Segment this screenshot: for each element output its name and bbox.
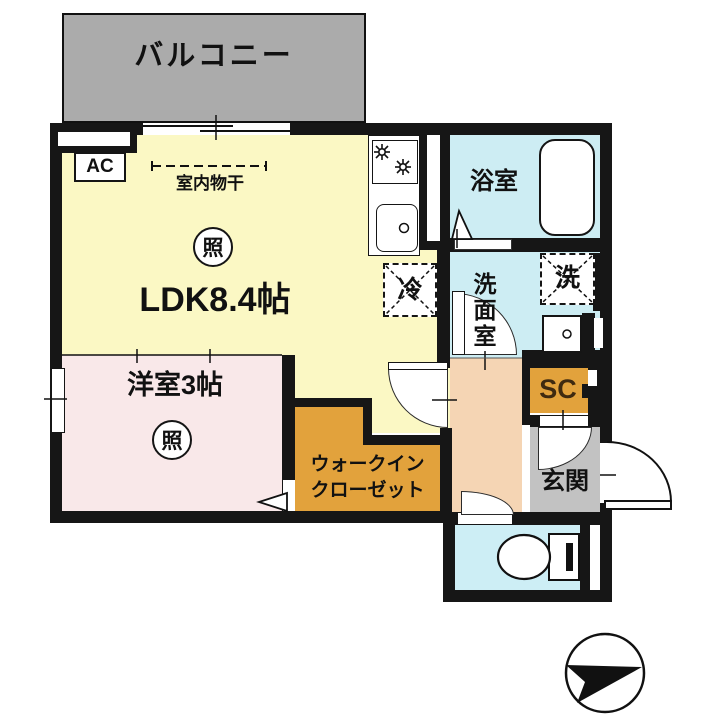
wall-kitchen-divider-a — [420, 135, 427, 243]
ldk-light-label: 照 — [203, 232, 224, 262]
western-window — [51, 368, 65, 433]
wall-wic-top — [295, 398, 370, 407]
ldk-door-leaf — [388, 362, 448, 370]
toilet-duct-nook — [590, 525, 600, 590]
wall-toilet-inner-right — [580, 525, 590, 590]
washbasin — [542, 315, 582, 353]
basin-wall-nook — [594, 318, 603, 348]
wall-kitchen-divider-c — [420, 241, 450, 250]
wall-bottom — [50, 511, 452, 523]
bathroom-label: 浴室 — [452, 168, 536, 196]
balcony-window-opening — [143, 123, 290, 135]
corner-window-inset — [58, 132, 130, 146]
balcony-label: バルコニー — [62, 40, 366, 73]
sc-door-opening — [540, 416, 588, 426]
washroom-door-leaf — [452, 291, 465, 355]
ldk-label: LDK8.4帖 — [100, 281, 330, 320]
washroom-label: 洗面室 — [466, 256, 496, 366]
wall-left — [50, 123, 62, 523]
bath-door-opening — [454, 239, 512, 250]
fridge-label: 冷 — [383, 276, 437, 305]
stove — [372, 140, 418, 184]
kitchen-sink — [376, 204, 418, 252]
indoor-drying-label: 室内物干 — [150, 174, 270, 194]
wic-label-line1: ウォークイン — [293, 452, 442, 478]
wall-kitchen-divider-b — [440, 135, 450, 243]
wall-washroom-left — [437, 250, 450, 368]
ac-box: AC — [74, 152, 126, 182]
ldk-light-badge: 照 — [193, 227, 233, 267]
sc-wall-notch — [588, 370, 597, 386]
shoe-closet-label: SC — [528, 374, 588, 405]
western-light-label: 照 — [162, 425, 183, 455]
bathtub — [539, 139, 595, 236]
entrance-label: 玄関 — [526, 468, 604, 496]
western-light-badge: 照 — [152, 420, 192, 460]
front-door-arc-icon — [607, 442, 671, 502]
western-room-label: 洋室3帖 — [80, 370, 270, 401]
wall-toilet-left — [443, 512, 455, 602]
compass-icon — [566, 634, 644, 712]
ac-label: AC — [86, 156, 113, 178]
wall-wic-top-right — [363, 435, 452, 445]
floor-plan: AC — [0, 0, 720, 720]
room-wic-upper — [295, 407, 363, 445]
wic-label-line2: クローゼット — [293, 478, 442, 504]
wic-label: ウォークイン クローゼット — [293, 452, 442, 504]
wall-toilet-bottom — [443, 590, 612, 602]
pipe-space — [427, 135, 440, 241]
front-door-leaf — [604, 500, 672, 510]
room-toilet — [455, 525, 580, 590]
washer-label: 洗 — [540, 264, 595, 293]
